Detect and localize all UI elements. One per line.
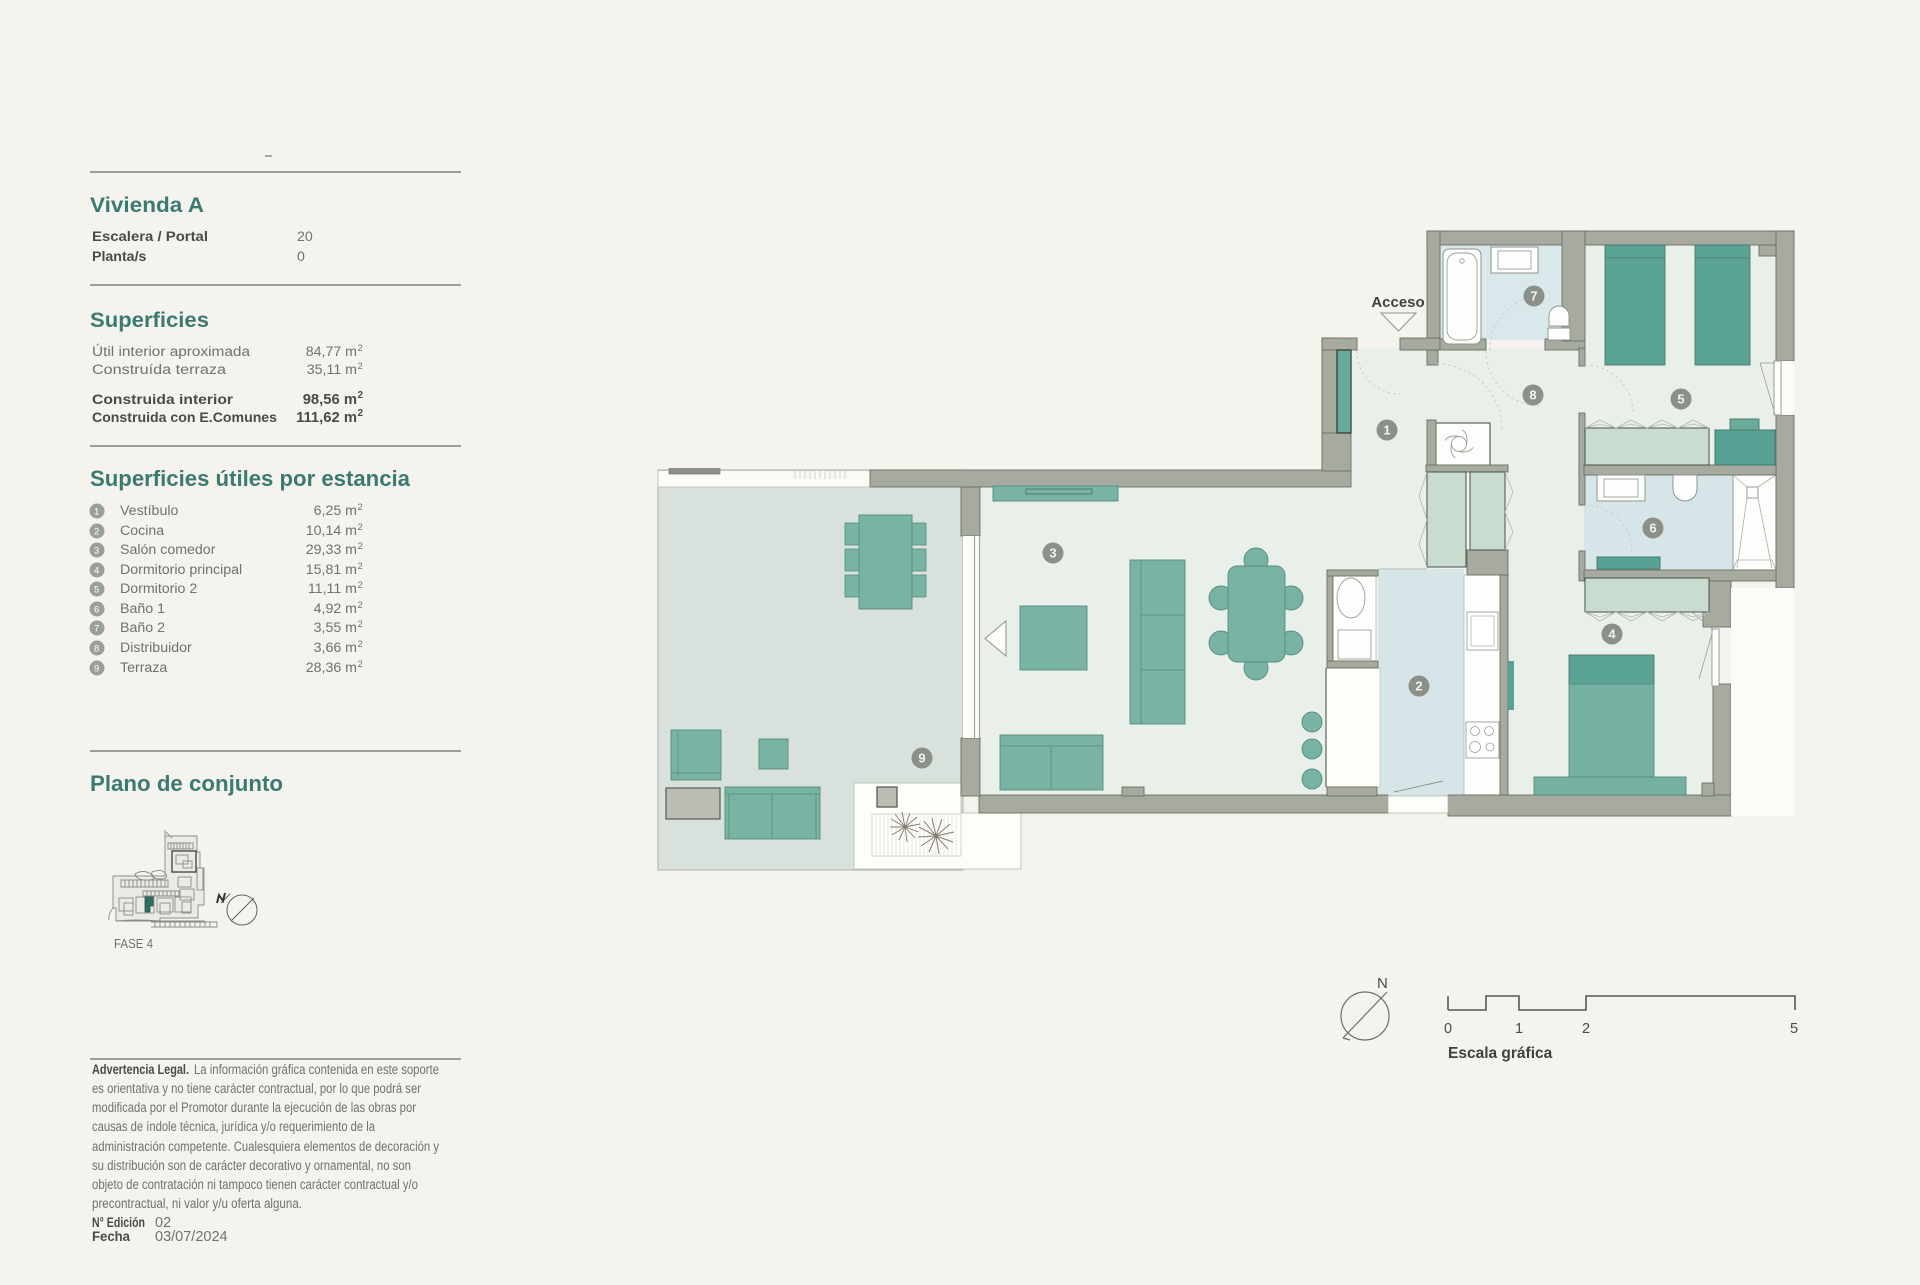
svg-text:Escala gráfica: Escala gráfica — [1448, 1045, 1553, 1062]
svg-text:Dormitorio principal: Dormitorio principal — [120, 562, 242, 578]
svg-text:Útil interior aproximada: Útil interior aproximada — [92, 343, 250, 360]
svg-text:Planta/s: Planta/s — [92, 249, 147, 265]
svg-text:modificada por el Promotor dur: modificada por el Promotor durante la ej… — [92, 1100, 416, 1115]
svg-text:Baño 2: Baño 2 — [120, 620, 165, 636]
svg-text:2: 2 — [358, 541, 363, 552]
svg-text:Distribuidor: Distribuidor — [120, 640, 192, 656]
svg-text:2: 2 — [94, 527, 99, 538]
svg-text:2: 2 — [358, 639, 363, 650]
svg-text:Construida interior: Construida interior — [92, 392, 234, 408]
svg-text:2: 2 — [358, 343, 363, 354]
svg-text:su distribución son de carácte: su distribución son de carácter decorati… — [92, 1158, 411, 1173]
svg-text:Construida con E.Comunes: Construida con E.Comunes — [92, 410, 277, 426]
svg-text:1: 1 — [94, 507, 99, 518]
svg-text:objeto de contratación ni tamp: objeto de contratación ni tampoco tienen… — [92, 1177, 418, 1192]
svg-text:2: 2 — [1415, 679, 1422, 694]
svg-text:28,36 m: 28,36 m — [306, 660, 357, 676]
svg-text:10,14 m: 10,14 m — [306, 523, 357, 539]
svg-text:7: 7 — [94, 624, 99, 635]
svg-text:1: 1 — [1515, 1021, 1523, 1037]
svg-text:Salón comedor: Salón comedor — [120, 542, 216, 558]
svg-text:2: 2 — [358, 522, 363, 533]
svg-text:administración competente. Cua: administración competente. Cualesquiera … — [92, 1139, 439, 1154]
svg-text:2: 2 — [358, 561, 363, 572]
svg-text:Cocina: Cocina — [120, 523, 164, 539]
svg-text:9: 9 — [918, 751, 925, 766]
svg-text:3,55 m: 3,55 m — [314, 620, 357, 636]
svg-text:2: 2 — [358, 361, 363, 372]
svg-text:Terraza: Terraza — [120, 660, 167, 676]
svg-text:Superficies útiles por estanci: Superficies útiles por estancia — [90, 466, 411, 491]
svg-text:20: 20 — [297, 229, 313, 245]
svg-text:6: 6 — [1649, 521, 1656, 536]
svg-text:3: 3 — [1049, 546, 1056, 561]
svg-text:8: 8 — [1529, 388, 1536, 403]
svg-text:5: 5 — [1790, 1021, 1798, 1037]
svg-text:98,56 m: 98,56 m — [303, 392, 357, 408]
svg-text:7: 7 — [1530, 289, 1537, 304]
svg-text:2: 2 — [1582, 1021, 1590, 1037]
svg-text:2: 2 — [358, 600, 363, 611]
svg-text:1: 1 — [1383, 423, 1390, 438]
svg-text:Advertencia Legal.: Advertencia Legal. — [92, 1062, 189, 1077]
svg-text:Acceso: Acceso — [1371, 294, 1424, 311]
svg-text:es orientativa y no tiene cará: es orientativa y no tiene carácter contr… — [92, 1081, 421, 1096]
svg-text:Dormitorio 2: Dormitorio 2 — [120, 581, 197, 597]
svg-text:causas de índole técnica, jurí: causas de índole técnica, jurídica y/o r… — [92, 1119, 375, 1134]
svg-text:2: 2 — [358, 659, 363, 670]
svg-text:35,11 m: 35,11 m — [307, 362, 357, 378]
svg-text:03/07/2024: 03/07/2024 — [155, 1229, 228, 1245]
svg-text:Vivienda A: Vivienda A — [90, 193, 204, 217]
svg-text:6,25 m: 6,25 m — [314, 503, 357, 519]
svg-text:Superficies: Superficies — [90, 308, 209, 332]
svg-text:Baño 1: Baño 1 — [120, 601, 165, 617]
svg-text:4: 4 — [1608, 627, 1616, 642]
svg-text:2: 2 — [358, 408, 364, 419]
svg-text:0: 0 — [297, 249, 305, 265]
svg-text:2: 2 — [358, 390, 364, 401]
svg-text:8: 8 — [94, 644, 99, 655]
svg-text:0: 0 — [1444, 1021, 1452, 1037]
svg-text:precontractual, ni valor y/u o: precontractual, ni valor y/u oferta algu… — [92, 1196, 302, 1211]
svg-text:5: 5 — [94, 585, 99, 596]
svg-text:Fecha: Fecha — [92, 1229, 130, 1244]
svg-text:2: 2 — [358, 619, 363, 630]
svg-text:15,81 m: 15,81 m — [306, 562, 357, 578]
svg-text:Escalera / Portal: Escalera / Portal — [92, 229, 208, 245]
svg-text:29,33 m: 29,33 m — [306, 542, 357, 558]
svg-text:11,11 m: 11,11 m — [308, 581, 357, 597]
svg-text:Construída terraza: Construída terraza — [92, 362, 226, 378]
svg-text:Vestíbulo: Vestíbulo — [120, 503, 178, 519]
svg-text:5: 5 — [1677, 392, 1684, 407]
svg-text:4: 4 — [94, 566, 99, 577]
svg-text:N: N — [1377, 975, 1388, 992]
svg-text:La información gráfica conteni: La información gráfica contenida en este… — [194, 1062, 439, 1077]
svg-text:Plano de conjunto: Plano de conjunto — [90, 771, 283, 796]
svg-text:84,77 m: 84,77 m — [306, 344, 357, 360]
svg-text:111,62 m: 111,62 m — [296, 410, 357, 426]
svg-text:2: 2 — [358, 502, 363, 513]
svg-text:2: 2 — [358, 580, 363, 591]
svg-text:3,66 m: 3,66 m — [314, 640, 357, 656]
svg-text:FASE 4: FASE 4 — [114, 936, 153, 951]
svg-text:N° Edición: N° Edición — [92, 1215, 145, 1230]
svg-text:3: 3 — [94, 546, 99, 557]
svg-text:9: 9 — [94, 664, 99, 675]
svg-text:4,92 m: 4,92 m — [314, 601, 357, 617]
svg-text:6: 6 — [94, 605, 99, 616]
